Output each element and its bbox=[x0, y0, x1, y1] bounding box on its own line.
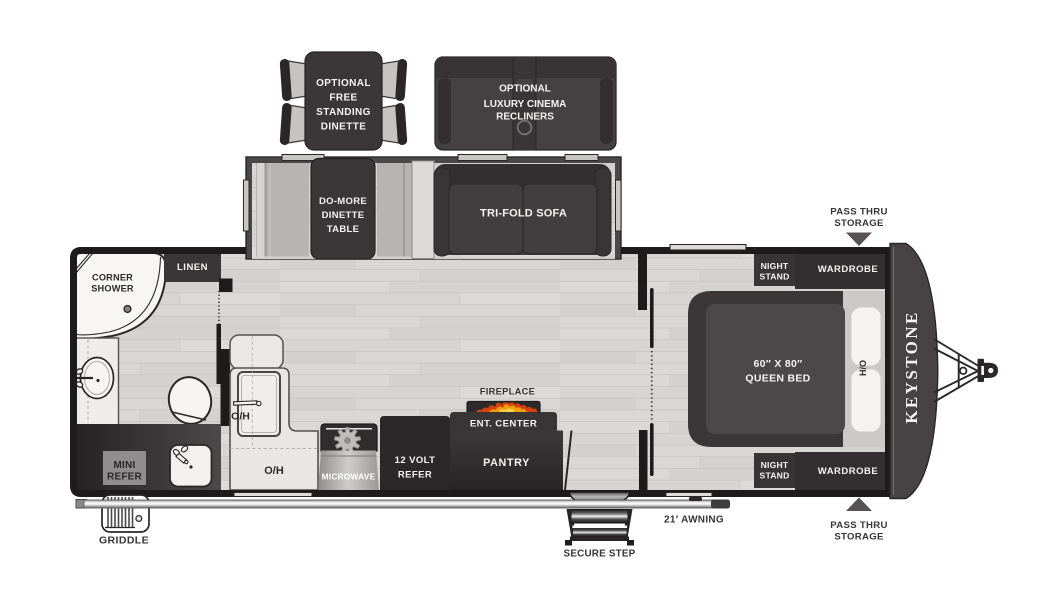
svg-text:NIGHT: NIGHT bbox=[761, 460, 789, 470]
svg-text:STAND: STAND bbox=[760, 272, 790, 282]
svg-text:LINEN: LINEN bbox=[177, 262, 208, 273]
svg-text:RECLINERS: RECLINERS bbox=[496, 112, 554, 123]
svg-text:CORNER: CORNER bbox=[92, 273, 133, 283]
svg-text:PANTRY: PANTRY bbox=[483, 457, 530, 469]
svg-text:PASS THRU: PASS THRU bbox=[830, 520, 887, 531]
svg-text:H/O: H/O bbox=[858, 360, 868, 376]
svg-text:SECURE STEP: SECURE STEP bbox=[564, 549, 636, 560]
svg-text:FREE: FREE bbox=[329, 93, 357, 104]
svg-text:FIREPLACE: FIREPLACE bbox=[480, 387, 535, 397]
svg-text:WARDROBE: WARDROBE bbox=[818, 264, 878, 275]
svg-text:60″ X 80″: 60″ X 80″ bbox=[754, 358, 803, 370]
svg-text:OPTIONAL: OPTIONAL bbox=[316, 78, 371, 89]
svg-text:PASS THRU: PASS THRU bbox=[830, 207, 887, 218]
svg-text:STORAGE: STORAGE bbox=[834, 218, 884, 229]
svg-text:MINI: MINI bbox=[114, 460, 136, 471]
svg-text:NIGHT: NIGHT bbox=[761, 261, 789, 271]
svg-text:SHOWER: SHOWER bbox=[91, 284, 134, 294]
svg-text:QUEEN BED: QUEEN BED bbox=[745, 373, 810, 385]
svg-text:LUXURY CINEMA: LUXURY CINEMA bbox=[484, 99, 567, 110]
svg-text:GRIDDLE: GRIDDLE bbox=[99, 535, 149, 547]
svg-text:O/H: O/H bbox=[231, 411, 250, 423]
svg-text:TABLE: TABLE bbox=[327, 224, 359, 235]
svg-text:O/H: O/H bbox=[264, 465, 284, 477]
svg-text:STANDING: STANDING bbox=[316, 107, 371, 118]
svg-text:WARDROBE: WARDROBE bbox=[818, 466, 878, 477]
svg-text:21′ AWNING: 21′ AWNING bbox=[664, 515, 724, 526]
svg-text:DINETTE: DINETTE bbox=[321, 122, 367, 133]
svg-text:STAND: STAND bbox=[760, 471, 790, 481]
svg-text:12 VOLT: 12 VOLT bbox=[395, 455, 436, 466]
svg-text:REFER: REFER bbox=[398, 470, 432, 481]
svg-text:DINETTE: DINETTE bbox=[322, 210, 365, 221]
svg-text:OPTIONAL: OPTIONAL bbox=[499, 84, 551, 95]
svg-text:MICROWAVE: MICROWAVE bbox=[322, 472, 376, 482]
svg-text:DO-MORE: DO-MORE bbox=[319, 196, 367, 207]
svg-text:STORAGE: STORAGE bbox=[834, 532, 884, 543]
svg-text:TRI-FOLD SOFA: TRI-FOLD SOFA bbox=[480, 208, 567, 220]
svg-text:REFER: REFER bbox=[107, 472, 142, 483]
svg-text:ENT. CENTER: ENT. CENTER bbox=[470, 419, 537, 430]
svg-text:KEYSTONE: KEYSTONE bbox=[902, 310, 921, 423]
